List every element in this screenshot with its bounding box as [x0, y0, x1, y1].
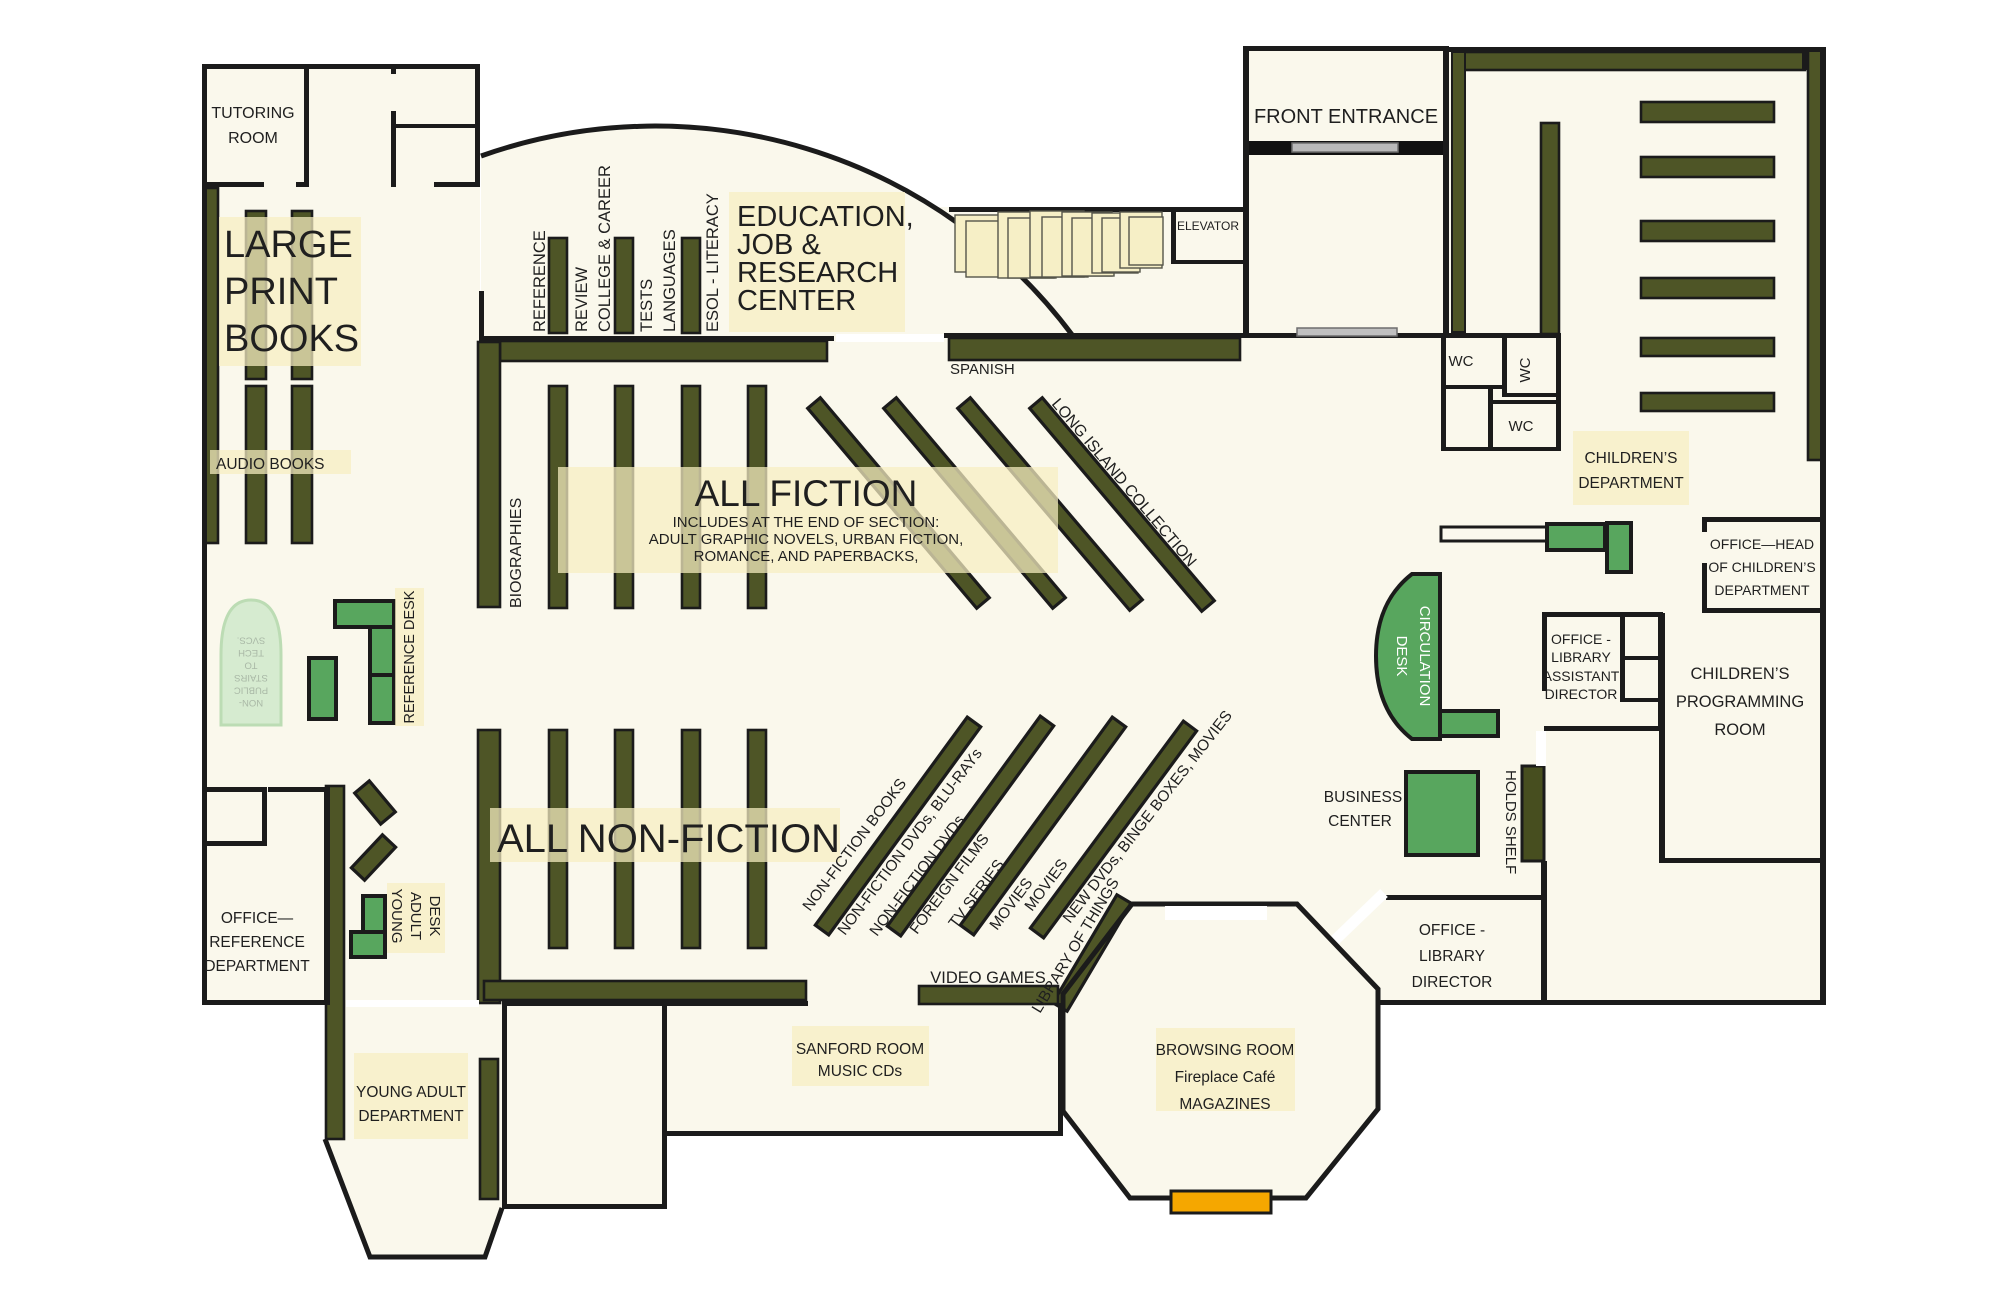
svg-text:AUDIO BOOKS: AUDIO BOOKS	[216, 456, 325, 473]
svg-text:MAGAZINES: MAGAZINES	[1179, 1096, 1270, 1113]
svg-text:DESK: DESK	[1393, 636, 1410, 677]
svg-text:MUSIC CDs: MUSIC CDs	[818, 1063, 903, 1080]
svg-text:DEPARTMENT: DEPARTMENT	[204, 958, 310, 975]
svg-text:DEPARTMENT: DEPARTMENT	[358, 1108, 464, 1125]
svg-text:CIRCULATION: CIRCULATION	[1416, 606, 1433, 707]
svg-text:COLLEGE & CAREER: COLLEGE & CAREER	[596, 165, 614, 332]
svg-text:OFFICE -: OFFICE -	[1551, 631, 1611, 647]
svg-text:CENTER: CENTER	[1328, 813, 1392, 830]
svg-text:ALL FICTION: ALL FICTION	[695, 473, 918, 514]
svg-text:OF CHILDREN’S: OF CHILDREN’S	[1708, 559, 1815, 575]
svg-text:REFERENCE DESK: REFERENCE DESK	[402, 590, 418, 723]
svg-text:Fireplace Café: Fireplace Café	[1175, 1069, 1276, 1086]
svg-text:BIOGRAPHIES: BIOGRAPHIES	[508, 498, 525, 608]
svg-text:WC: WC	[1449, 353, 1474, 370]
svg-text:CENTER: CENTER	[737, 285, 856, 317]
svg-text:OFFICE—: OFFICE—	[221, 910, 294, 927]
svg-text:DEPARTMENT: DEPARTMENT	[1578, 475, 1684, 492]
svg-text:DIRECTOR: DIRECTOR	[1545, 686, 1618, 702]
svg-text:VIDEO GAMES: VIDEO GAMES	[930, 969, 1046, 987]
svg-text:SVCS.: SVCS.	[237, 635, 266, 646]
svg-text:TESTS: TESTS	[638, 279, 656, 332]
svg-text:BOOKS: BOOKS	[224, 318, 359, 360]
svg-text:REFERENCE: REFERENCE	[209, 934, 305, 951]
svg-text:YOUNG: YOUNG	[388, 888, 405, 943]
svg-text:LIBRARY: LIBRARY	[1419, 948, 1485, 965]
svg-text:REFERENCE: REFERENCE	[531, 230, 549, 332]
svg-text:ROOM: ROOM	[228, 130, 278, 147]
svg-text:DIRECTOR: DIRECTOR	[1412, 974, 1493, 991]
svg-text:OFFICE—HEAD: OFFICE—HEAD	[1710, 536, 1814, 552]
svg-text:ROOM: ROOM	[1714, 721, 1765, 739]
svg-text:DESK: DESK	[426, 896, 443, 937]
svg-text:SANFORD ROOM: SANFORD ROOM	[796, 1041, 924, 1058]
svg-text:YOUNG ADULT: YOUNG ADULT	[356, 1084, 466, 1101]
svg-text:STAIRS: STAIRS	[234, 672, 268, 683]
svg-text:TECH: TECH	[238, 647, 264, 658]
svg-text:LARGE: LARGE	[224, 224, 353, 266]
svg-text:ELEVATOR: ELEVATOR	[1177, 219, 1239, 233]
svg-text:NON-: NON-	[239, 697, 263, 708]
svg-text:FRONT ENTRANCE: FRONT ENTRANCE	[1254, 106, 1438, 128]
svg-text:TUTORING: TUTORING	[211, 105, 294, 122]
svg-text:BROWSING ROOM: BROWSING ROOM	[1156, 1042, 1295, 1059]
svg-text:WC: WC	[1517, 357, 1534, 382]
svg-text:HOLDS SHELF: HOLDS SHELF	[1502, 770, 1519, 874]
svg-text:WC: WC	[1509, 418, 1534, 435]
svg-text:INCLUDES AT THE END OF SECTION: INCLUDES AT THE END OF SECTION:	[673, 514, 940, 531]
svg-text:ASSISTANT: ASSISTANT	[1543, 668, 1620, 684]
svg-text:ALL NON-FICTION: ALL NON-FICTION	[497, 817, 840, 861]
svg-text:SPANISH: SPANISH	[950, 361, 1015, 378]
svg-text:TO: TO	[244, 660, 257, 671]
svg-text:PROGRAMMING: PROGRAMMING	[1676, 693, 1804, 711]
svg-text:LANGUAGES: LANGUAGES	[661, 229, 679, 332]
svg-text:DEPARTMENT: DEPARTMENT	[1714, 582, 1810, 598]
svg-text:PUBLIC: PUBLIC	[234, 685, 268, 696]
svg-text:CHILDREN’S: CHILDREN’S	[1690, 665, 1789, 683]
svg-text:LIBRARY: LIBRARY	[1551, 649, 1611, 665]
svg-text:ADULT: ADULT	[407, 892, 424, 940]
svg-text:OFFICE -: OFFICE -	[1419, 922, 1485, 939]
svg-text:REVIEW: REVIEW	[573, 266, 591, 332]
svg-text:CHILDREN’S: CHILDREN’S	[1584, 450, 1677, 467]
svg-text:BUSINESS: BUSINESS	[1324, 789, 1402, 806]
svg-text:ESOL - LITERACY: ESOL - LITERACY	[704, 193, 722, 332]
svg-text:ADULT GRAPHIC NOVELS, URBAN FI: ADULT GRAPHIC NOVELS, URBAN FICTION,	[649, 531, 964, 548]
svg-text:ROMANCE, AND PAPERBACKS,: ROMANCE, AND PAPERBACKS,	[694, 548, 919, 565]
svg-text:PRINT: PRINT	[224, 271, 338, 313]
